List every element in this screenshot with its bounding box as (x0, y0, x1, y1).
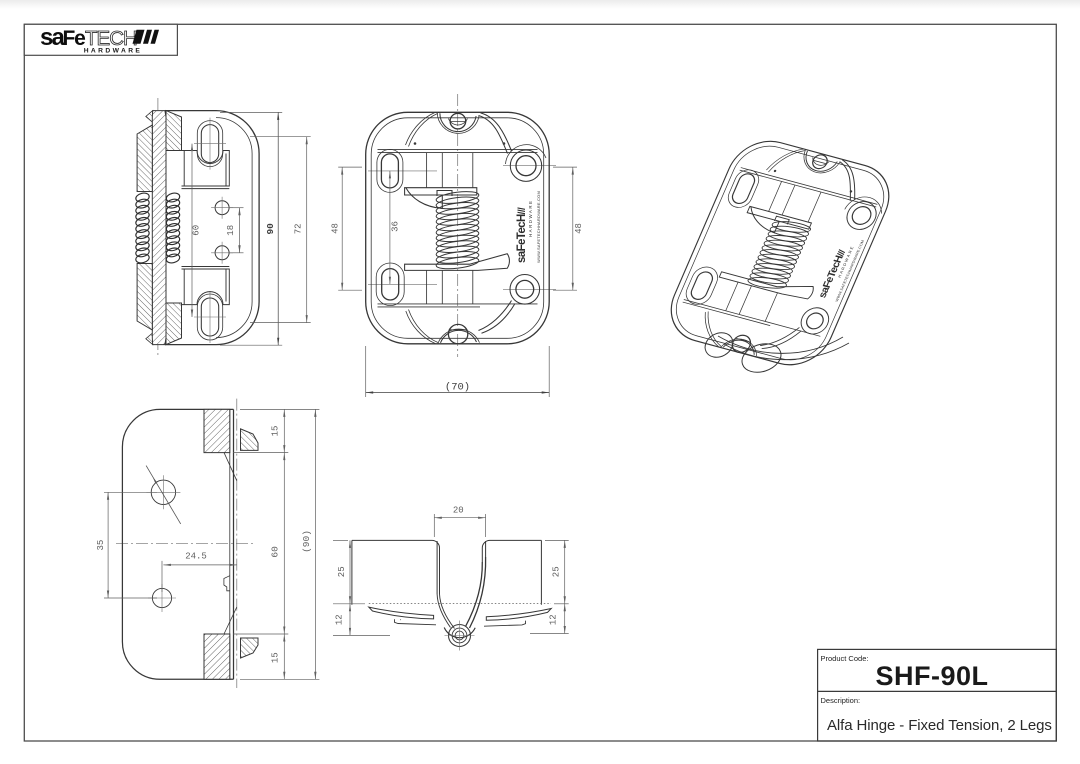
svg-text:25: 25 (552, 566, 562, 577)
svg-text:WWW.SAFETECHHARDWARE.COM: WWW.SAFETECHHARDWARE.COM (536, 191, 541, 263)
svg-text:HARDWARE: HARDWARE (84, 48, 143, 55)
svg-text:saFeTecH///: saFeTecH/// (516, 207, 528, 263)
svg-text:SHF-90L: SHF-90L (875, 661, 988, 691)
svg-text:20: 20 (453, 506, 464, 516)
svg-text:35: 35 (96, 540, 106, 551)
svg-text:60: 60 (270, 546, 281, 558)
svg-text:Alfa Hinge - Fixed Tension, 2: Alfa Hinge - Fixed Tension, 2 Legs (827, 717, 1052, 734)
svg-text:60: 60 (192, 225, 202, 236)
svg-text:72: 72 (293, 223, 303, 234)
svg-text:48: 48 (331, 223, 341, 234)
svg-text:(90): (90) (301, 530, 312, 553)
svg-text:Description:: Description: (821, 696, 861, 705)
svg-text:Fe: Fe (63, 27, 86, 50)
svg-text:25: 25 (337, 566, 347, 577)
svg-text:24.5: 24.5 (185, 552, 207, 562)
svg-text:36: 36 (391, 221, 401, 232)
svg-text:15: 15 (271, 652, 281, 663)
svg-text:15: 15 (271, 426, 281, 437)
svg-text:HARDWARE: HARDWARE (528, 200, 533, 237)
svg-text:18: 18 (226, 225, 236, 236)
svg-text:12: 12 (549, 614, 559, 625)
svg-text:12: 12 (334, 614, 344, 625)
svg-text:90: 90 (265, 223, 276, 235)
svg-text:(70): (70) (445, 382, 470, 394)
svg-text:48: 48 (574, 223, 584, 234)
svg-text:Product Code:: Product Code: (821, 654, 869, 663)
